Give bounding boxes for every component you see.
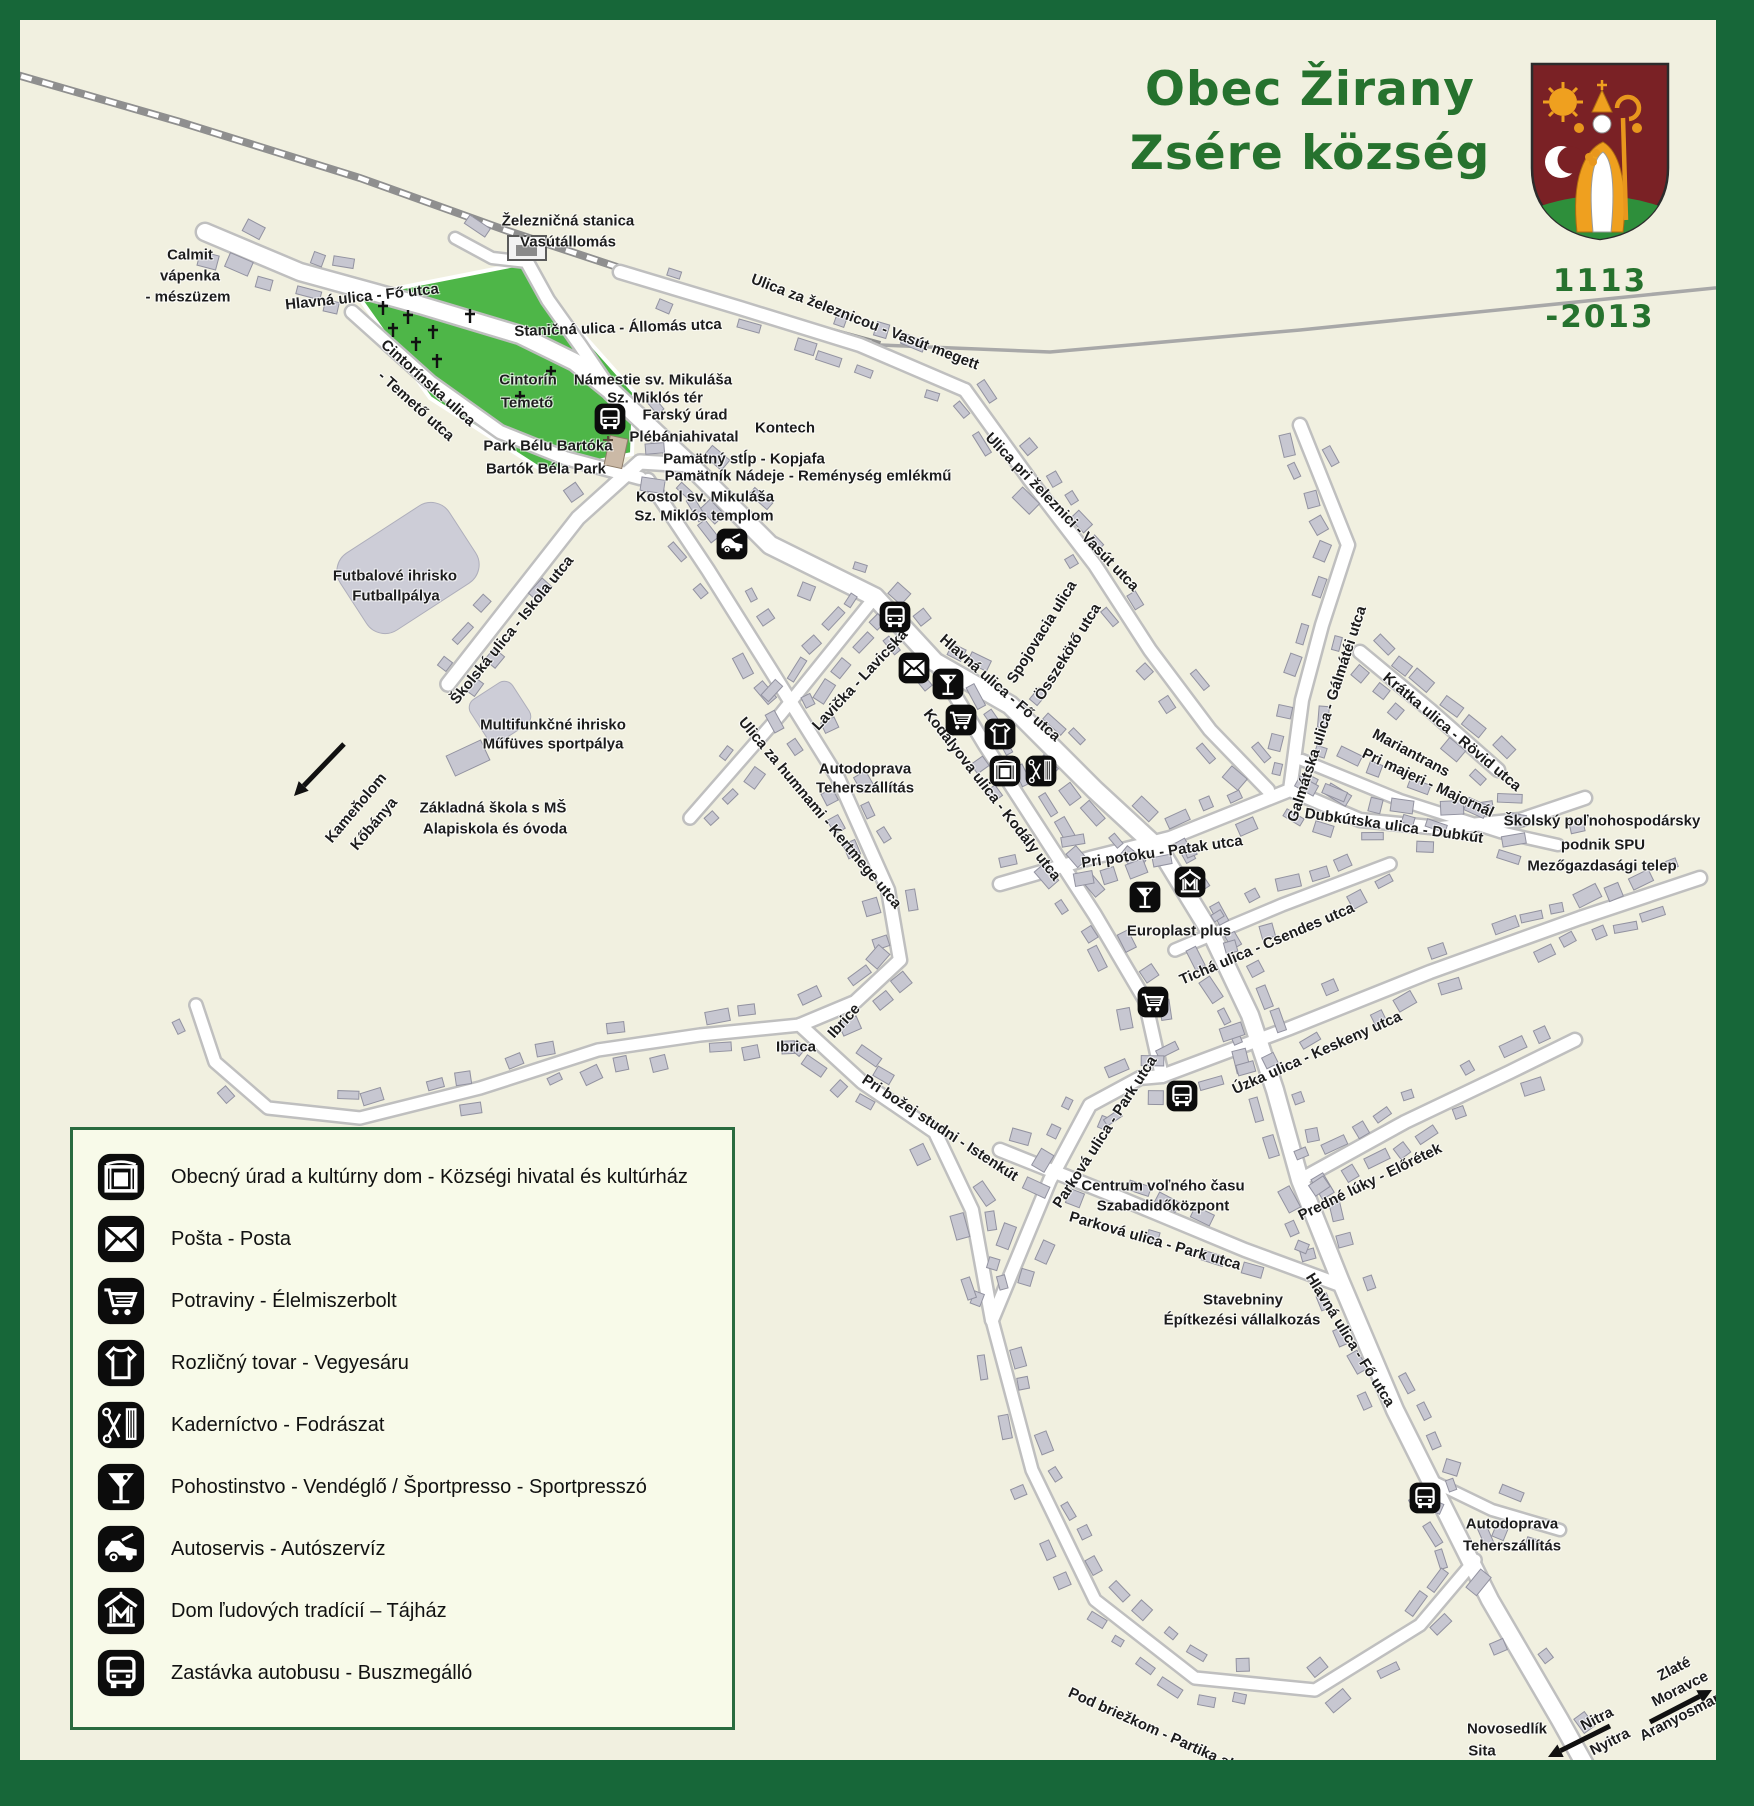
map-label: Školský poľnohospodársky [1504,813,1701,830]
map-label: Calmit [167,247,213,264]
map-label: Železničná stanica [502,213,635,230]
clothes-icon [984,718,1016,750]
legend-item: Autoservis - Autószervíz [97,1524,386,1574]
map-label: Autodoprava [819,761,912,778]
pub-icon [1129,881,1161,913]
culture-house-icon [989,755,1021,787]
pub-icon [932,668,964,700]
legend-box: Obecný úrad a kultúrny dom - Községi hiv… [70,1127,735,1730]
map-label: Centrum voľného času [1081,1178,1244,1195]
bus-icon [97,1649,145,1697]
legend-item: Pohostinstvo - Vendéglő / Športpresso - … [97,1462,647,1512]
map-label: Teherszállítás [1463,1538,1561,1555]
legend-item: Pošta - Posta [97,1214,291,1264]
map-label: Kostol sv. Mikuláša [636,489,774,506]
village-map-poster: Calmitvápenka- mészüzemHlavná ulica - Fő… [0,0,1754,1806]
legend-item-label: Kaderníctvo - Fodrászat [171,1414,384,1437]
bus-icon [1409,1482,1441,1514]
legend-item: Dom ľudových tradícií – Tájház [97,1586,447,1636]
shop-icon [97,1277,145,1325]
anniversary-years: 1113 -2013 [1506,263,1694,335]
map-label: Futballpálya [352,588,440,605]
coat-of-arms-shield [1525,60,1675,244]
legend-item: Kaderníctvo - Fodrászat [97,1400,384,1450]
clothes-icon [97,1339,145,1387]
shop-icon [1137,986,1169,1018]
map-label: Kontech [755,420,815,437]
map-label: Stavebniny [1203,1292,1283,1309]
legend-item-label: Zastávka autobusu - Buszmegálló [171,1662,472,1685]
map-label: Park Bélu Bartóka [483,438,612,455]
map-label: Futbalové ihrisko [333,568,457,585]
map-label: Bartók Béla Park [486,461,606,478]
map-label: vápenka [160,268,220,285]
hairdresser-icon [97,1401,145,1449]
pub-icon [97,1463,145,1511]
map-label: Novosedlík [1467,1721,1547,1738]
map-label: - mészüzem [145,289,230,306]
map-label: Pamätník Nádeje - Reménység emlékmű [665,468,952,485]
map-label: Vasútállomás [520,234,616,251]
map-label: podnik SPU [1561,837,1645,854]
legend-item-label: Obecný úrad a kultúrny dom - Községi hiv… [171,1166,688,1189]
direction-arrow [304,744,344,786]
sun-icon [1543,82,1583,122]
map-label: Építkezési vállalkozás [1164,1312,1321,1329]
map-label: Sz. Miklós templom [634,508,773,525]
legend-item-label: Pošta - Posta [171,1228,291,1251]
legend-item-label: Autoservis - Autószervíz [171,1538,386,1561]
shop-icon [945,704,977,736]
legend-item: Obecný úrad a kultúrny dom - Községi hiv… [97,1152,688,1202]
post-icon [898,652,930,684]
map-label: Základná škola s MŠ [420,800,567,817]
map-label: Alapiskola és óvoda [423,821,567,838]
hairdresser-icon [1025,755,1057,787]
legend-item: Rozličný tovar - Vegyesáru [97,1338,409,1388]
map-label: Műfüves sportpálya [483,736,624,753]
map-label: Cintorín [499,372,557,389]
map-label: Teherszállítás [816,780,914,797]
autoservice-icon [97,1525,145,1573]
map-label: Farský úrad [642,407,727,424]
post-icon [97,1215,145,1263]
coat-of-arms: 1113 -2013 [1506,60,1694,335]
map-label: Temető [501,395,553,412]
bus-icon [879,601,911,633]
map-label: Pamätný stĺp - Kopjafa [663,451,825,468]
legend-item-label: Dom ľudových tradícií – Tájház [171,1600,447,1623]
map-label: Mezőgazdasági telep [1527,858,1676,875]
legend-item-label: Pohostinstvo - Vendéglő / Športpresso - … [171,1476,647,1499]
heritage-house-icon [97,1587,145,1635]
map-label: Námestie sv. Mikuláša [574,372,732,389]
map-label: Sita [1468,1743,1496,1760]
culture-house-icon [97,1153,145,1201]
legend-item: Potraviny - Élelmiszerbolt [97,1276,397,1326]
map-label: Szabadidőközpont [1097,1198,1230,1215]
map-label: Autodoprava [1466,1516,1559,1533]
legend-item-label: Potraviny - Élelmiszerbolt [171,1290,397,1313]
heritage-house-icon [1174,866,1206,898]
legend-item-label: Rozličný tovar - Vegyesáru [171,1352,409,1375]
map-label: Ibrica [776,1039,816,1056]
map-label: Europlast plus [1127,923,1231,940]
autoservice-icon [716,528,748,560]
bus-icon [1166,1080,1198,1112]
bus-icon [594,403,626,435]
legend-item: Zastávka autobusu - Buszmegálló [97,1648,472,1698]
map-label: Multifunkčné ihrisko [480,717,626,734]
map-label: Plébániahivatal [629,429,738,446]
